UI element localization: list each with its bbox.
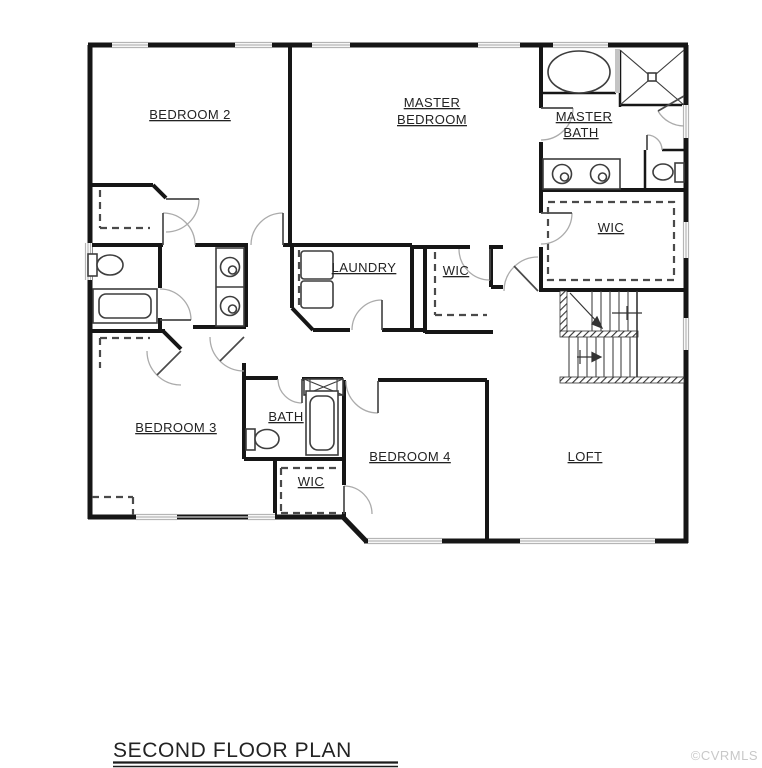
master-bath-label-line2: BATH [563, 125, 598, 140]
bedroom2-door2-arc [251, 213, 283, 245]
master-wic-door-arc [541, 213, 572, 244]
plan-title: SECOND FLOOR PLAN [113, 739, 352, 762]
water-closet-door-arc [647, 135, 662, 150]
stair-rail-hatch [560, 291, 567, 333]
door-leaf [157, 351, 181, 375]
stair-rail-hatch [560, 377, 684, 383]
laundry-door-arc [352, 300, 382, 330]
bedroom2-label: BEDROOM 2 [149, 107, 231, 122]
loft-label: LOFT [568, 449, 603, 464]
master-bedroom-label-line1: MASTER [404, 95, 461, 110]
door-leaf [658, 96, 684, 111]
bedroom4-door-arc [346, 381, 378, 413]
window [682, 222, 690, 258]
door-leaf [220, 337, 244, 361]
title-block: SECOND FLOOR PLAN [113, 739, 398, 767]
window [368, 537, 442, 545]
window [682, 105, 690, 138]
second-floor-plan-drawing: BEDROOM 2 MASTER BEDROOM MASTER BATH WIC… [0, 0, 762, 768]
center-wic-label: WIC [443, 263, 469, 278]
hall-toilet-icon [88, 254, 123, 276]
floor-plan-page: BEDROOM 2 MASTER BEDROOM MASTER BATH WIC… [0, 0, 762, 768]
bath-bathtub-icon [306, 391, 338, 455]
bedroom3-closet-dashes [100, 338, 150, 368]
bedroom3-corner-dashes [92, 497, 133, 515]
shower-door-arc [658, 111, 684, 126]
stair-rail-hatch [560, 331, 638, 337]
bedroom2-closet-dashes [100, 190, 150, 228]
hall-bathtub-icon [93, 289, 157, 323]
window [682, 318, 690, 350]
washer-dryer-icon [301, 251, 333, 308]
hall-bath-door-arc [160, 289, 191, 320]
bedroom3-closet-walls [88, 331, 181, 349]
master-bedroom-label-line2: BEDROOM [397, 112, 467, 127]
bedroom2-closet-door-arc [166, 199, 199, 232]
hall-vanity-sinks-icon [216, 248, 244, 326]
bath-door-arc [278, 379, 302, 403]
stair-direction-arrows [570, 293, 642, 364]
bedroom4-label: BEDROOM 4 [369, 449, 451, 464]
bath-toilet-icon [246, 429, 279, 450]
master-wic-label: WIC [598, 220, 624, 235]
watermark: ©CVRMLS [691, 748, 758, 763]
master-bath-label-line1: MASTER [556, 109, 613, 124]
bath-label: BATH [268, 409, 303, 424]
window [478, 41, 520, 49]
window [312, 41, 350, 49]
master-toilet-icon [653, 163, 684, 182]
lower-wic-label: WIC [298, 474, 324, 489]
stairs [560, 291, 684, 383]
window [553, 41, 608, 49]
laundry-label: LAUNDRY [332, 260, 397, 275]
window [248, 513, 275, 521]
window [136, 513, 177, 521]
window [235, 41, 272, 49]
wic-lower-door-arc [344, 486, 372, 514]
shower-icon [620, 50, 684, 105]
tub-shower-divider [615, 49, 620, 93]
master-bathtub-icon [548, 51, 610, 93]
window [520, 537, 655, 545]
master-vanity-sinks-icon [543, 159, 620, 189]
window [112, 41, 148, 49]
door-leaf [514, 266, 538, 291]
bedroom3-label: BEDROOM 3 [135, 420, 217, 435]
